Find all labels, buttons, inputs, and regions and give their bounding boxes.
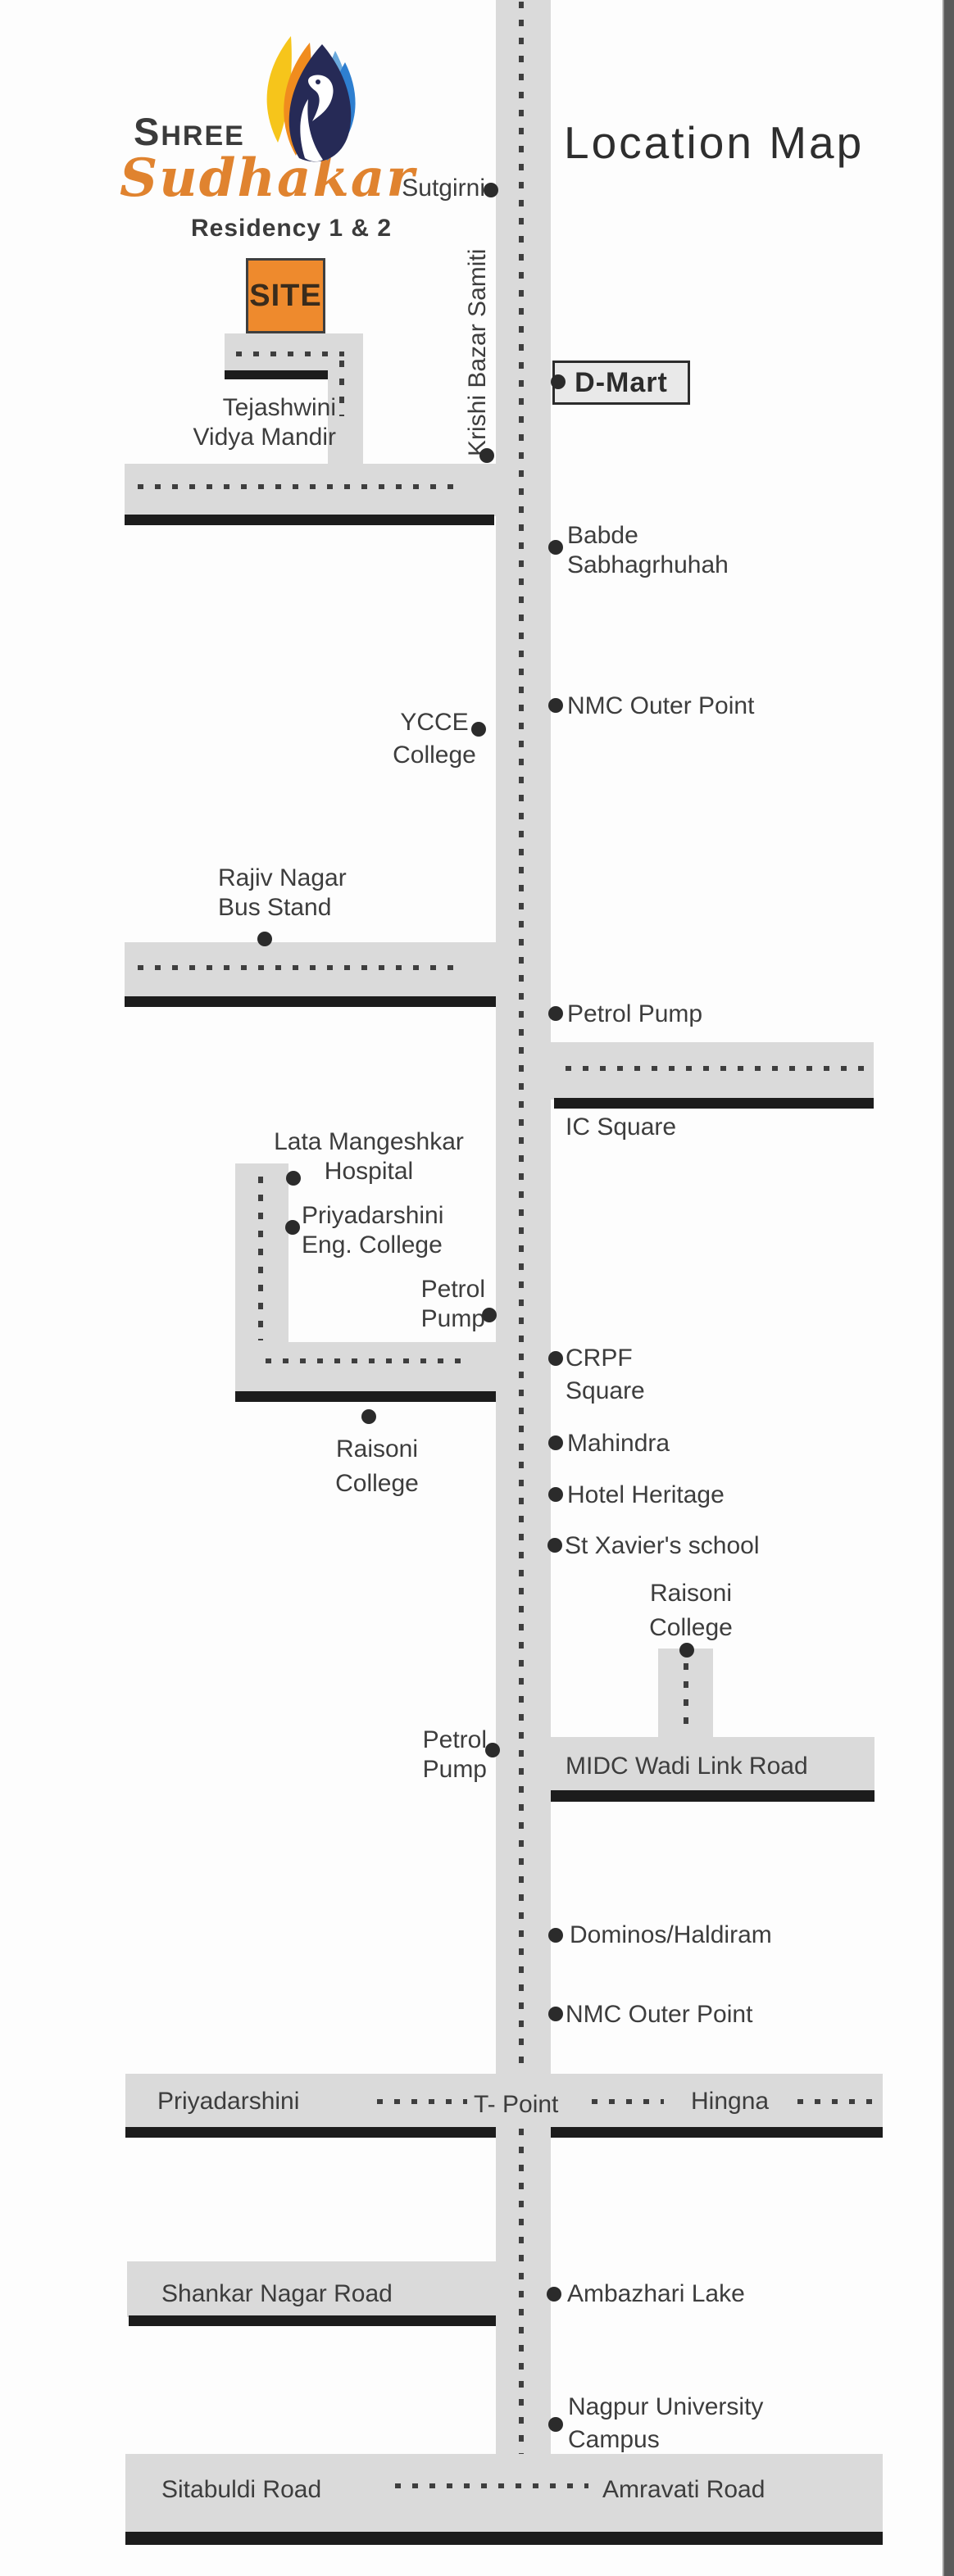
road-u-horizontal-centerline [266,1358,461,1363]
road-bottom-blackline [125,2532,883,2545]
label-nagpur-university: Nagpur University Campus [568,2391,763,2456]
marker-dot-petrol-pump-3 [485,1743,500,1757]
label-petrol-pump-2: Petrol Pump [361,1275,485,1334]
page-edge-strip [943,0,954,2576]
road-tpoint-blackline-right [551,2127,883,2138]
road-label-hingna: Hingna [691,2087,769,2116]
label-priyadarshini-eng: Priyadarshini Eng. College [302,1201,443,1260]
road-bottom-dots [395,2483,588,2488]
road-site-branch-stub-centerline [339,361,344,416]
road-branch-2 [125,942,496,998]
road-u-horizontal [235,1342,497,1393]
label-lata-mangeshkar: Lata Mangeshkar Hospital [246,1127,492,1186]
marker-dot-rajiv [257,932,272,946]
label-nmc-outer-2: NMC Outer Point [566,2000,752,2030]
marker-dot-sutgirni [484,183,498,197]
brand-residency: Residency 1 & 2 [191,215,392,243]
label-raisoni-left: Raisoni College [316,1432,438,1501]
marker-dot-ycce [471,722,486,737]
marker-dot-raisoni-right [679,1643,694,1658]
marker-dot-priyadarshini-eng [285,1220,300,1235]
road-branch-1 [125,464,496,516]
logo-swan-eye [316,79,320,84]
marker-dot-nmc-outer-2 [548,2007,563,2021]
label-raisoni-right: Raisoni College [629,1576,752,1645]
marker-dot-crpf [548,1351,563,1366]
label-babde: Babde Sabhagrhuhah [567,521,729,580]
marker-dot-mahindra [548,1435,563,1450]
road-branch-2-blackline [125,996,496,1007]
road-label-shankar-nagar: Shankar Nagar Road [161,2279,393,2309]
label-petrol-pump-1: Petrol Pump [567,1000,702,1029]
marker-dot-st-xavier [547,1538,562,1553]
label-petrol-pump-3: Petrol Pump [377,1726,487,1785]
road-shankar-blackline [129,2315,496,2326]
label-hotel-heritage: Hotel Heritage [567,1481,725,1510]
marker-dot-ambazhari [547,2287,561,2302]
road-branch-1-blackline [125,515,494,525]
label-ycce: YCCE College [373,706,496,772]
road-ic-square-branch [551,1042,874,1100]
page-title: Location Map [564,116,864,169]
marker-dot-raisoni-left [361,1409,376,1424]
road-tpoint-blackline-left [125,2127,496,2138]
label-mahindra: Mahindra [567,1429,670,1458]
swan-logo-icon [242,34,365,170]
marker-dot-dmart [551,374,566,389]
label-sutgirni: Sutgirni [344,174,485,203]
marker-dot-nmc-outer-1 [548,698,563,713]
road-branch-2-centerline [138,965,459,970]
road-tpoint-dots-1 [377,2099,467,2104]
marker-dot-hotel-heritage [548,1487,563,1502]
marker-dot-petrol-pump-2 [482,1308,497,1322]
road-label-midc: MIDC Wadi Link Road [566,1752,861,1781]
road-ic-square-blackline [554,1098,874,1109]
label-ic-square: IC Square [566,1113,676,1142]
road-label-sitabuldi: Sitabuldi Road [161,2475,321,2505]
marker-dot-petrol-pump-1 [548,1006,563,1021]
marker-dot-dominos [548,1928,563,1943]
label-rajiv-nagar: Rajiv Nagar Bus Stand [218,864,347,923]
road-label-krishi-bazar-samiti: Krishi Bazar Samiti [464,249,492,456]
marker-dot-lata [286,1171,301,1186]
road-label-priyadarshini: Priyadarshini [157,2087,299,2116]
road-label-t-point: T- Point [474,2090,558,2120]
road-site-branch-top-blackline [225,370,328,379]
label-crpf-square: CRPF Square [566,1342,645,1408]
road-tpoint-dots-2 [592,2099,664,2104]
road-branch-1-centerline [138,484,459,489]
dmart-box: D-Mart [552,361,690,405]
marker-dot-krishi [479,448,494,463]
location-map-page: SHREE Sudhakar Residency 1 & 2 Location … [0,0,954,2576]
road-raisoni-stub-centerline [684,1663,688,1735]
road-tpoint-dots-3 [797,2099,879,2104]
road-midc-blackline [551,1790,874,1802]
site-marker: SITE [246,258,325,333]
road-u-horizontal-blackline [235,1391,496,1402]
road-site-branch-top-centerline [236,351,344,356]
marker-dot-nagpur-university [548,2417,563,2432]
label-ambazhari: Ambazhari Lake [567,2279,745,2309]
label-nmc-outer-1: NMC Outer Point [567,692,754,721]
road-ic-square-centerline [566,1066,867,1071]
marker-dot-babde [548,540,563,555]
label-dominos: Dominos/Haldiram [570,1921,772,1950]
road-u-vertical-centerline [258,1177,263,1340]
road-label-amravati: Amravati Road [602,2475,765,2505]
label-st-xavier: St Xavier's school [565,1531,760,1561]
label-tejashwini: Tejashwini Vidya Mandir [172,393,336,452]
